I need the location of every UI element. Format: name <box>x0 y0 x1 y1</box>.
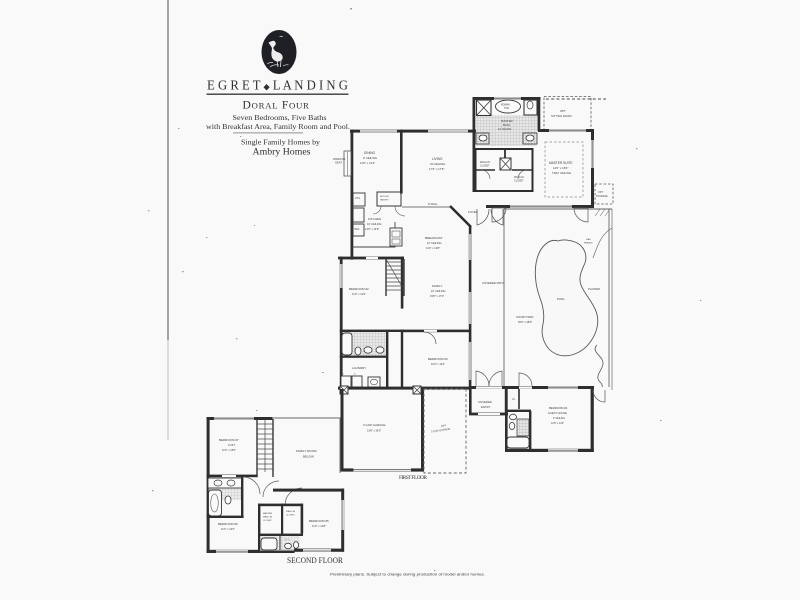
svg-text:12'8" x 14'0": 12'8" x 14'0" <box>551 422 564 425</box>
svg-text:17'6" x 17'8": 17'6" x 17'8" <box>429 167 444 171</box>
svg-text:OPT: OPT <box>441 423 447 428</box>
svg-text:Single Family Homes by: Single Family Homes by <box>241 139 321 147</box>
svg-text:KITCHEN: KITCHEN <box>368 217 381 221</box>
svg-text:SEAT: SEAT <box>335 161 342 165</box>
svg-text:DINING: DINING <box>364 151 376 155</box>
svg-text:LOFT: LOFT <box>228 443 235 447</box>
svg-text:BREAKFAST: BREAKFAST <box>425 236 443 240</box>
svg-text:Preliminary plans. Subject to: Preliminary plans. Subject to change dur… <box>330 573 485 577</box>
svg-text:TUB: TUB <box>504 107 509 110</box>
svg-text:GUEST HOUSE: GUEST HOUSE <box>548 411 567 415</box>
svg-text:BEDROOM #5: BEDROOM #5 <box>309 519 329 523</box>
svg-text:HEATED: HEATED <box>584 242 593 245</box>
svg-text:WALK-IN: WALK-IN <box>286 510 295 513</box>
svg-text:ENTRY: ENTRY <box>481 405 491 409</box>
svg-text:12' CEILING: 12' CEILING <box>498 128 511 131</box>
svg-text:FAMILY ROOM: FAMILY ROOM <box>296 449 317 453</box>
svg-text:11'0" x 12'0": 11'0" x 12'0" <box>352 292 366 296</box>
svg-text:BEDROOM #3: BEDROOM #3 <box>428 357 448 361</box>
svg-text:Seven Bedrooms, Five Baths: Seven Bedrooms, Five Baths <box>233 113 327 122</box>
svg-text:PANTRY: PANTRY <box>380 199 389 202</box>
svg-text:SECOND FLOOR: SECOND FLOOR <box>287 556 343 565</box>
svg-text:COVERED: COVERED <box>478 400 492 404</box>
svg-text:GAS: GAS <box>586 238 591 241</box>
svg-text:MASTER SUITE: MASTER SUITE <box>549 161 573 165</box>
svg-text:FAMILY: FAMILY <box>432 284 442 288</box>
svg-text:50'0" x 48'0": 50'0" x 48'0" <box>518 320 532 324</box>
svg-text:8' WALL: 8' WALL <box>428 202 438 206</box>
svg-text:COVERED PATIO: COVERED PATIO <box>482 281 505 285</box>
svg-text:11'0" x 13'8": 11'0" x 13'8" <box>426 246 440 250</box>
svg-text:OPT: OPT <box>598 191 603 194</box>
svg-text:MASTER: MASTER <box>263 512 273 515</box>
svg-text:SITTING ROOM: SITTING ROOM <box>551 114 572 118</box>
svg-text:CLOSET: CLOSET <box>480 165 490 168</box>
svg-text:REF: REF <box>355 228 360 231</box>
svg-text:PLANTER: PLANTER <box>588 287 600 291</box>
svg-text:BATH: BATH <box>503 123 510 127</box>
svg-text:FOYER: FOYER <box>468 210 478 214</box>
svg-text:11'0" x 15'0": 11'0" x 15'0" <box>222 448 236 452</box>
svg-text:BEDROOM #7: BEDROOM #7 <box>219 438 239 442</box>
svg-text:BEDROOM #6: BEDROOM #6 <box>218 522 238 526</box>
svg-text:LAUNDRY: LAUNDRY <box>352 366 366 370</box>
svg-text:13'6" x 14'8": 13'6" x 14'8" <box>365 227 379 231</box>
svg-text:BEDROOM #2: BEDROOM #2 <box>349 287 369 291</box>
svg-text:CLOSET: CLOSET <box>514 180 524 183</box>
svg-text:BELOW: BELOW <box>303 455 314 459</box>
svg-text:Ambry Homes: Ambry Homes <box>253 148 311 158</box>
svg-text:10'4" x 11'4": 10'4" x 11'4" <box>431 362 445 366</box>
svg-text:OPT: OPT <box>560 109 566 113</box>
svg-text:CLOSET: CLOSET <box>263 520 272 522</box>
svg-text:VA CEILING: VA CEILING <box>430 162 445 166</box>
svg-text:STORAGE: STORAGE <box>596 195 608 198</box>
svg-text:WALK-IN: WALK-IN <box>263 516 272 519</box>
svg-text:10' CEILING: 10' CEILING <box>427 241 441 245</box>
svg-text:BEDROOM #4: BEDROOM #4 <box>549 406 568 410</box>
svg-text:TRAY CEILING: TRAY CEILING <box>552 171 571 175</box>
svg-text:11'6" x 13'4": 11'6" x 13'4" <box>360 161 375 165</box>
svg-text:19'8" x 36'0": 19'8" x 36'0" <box>367 429 381 433</box>
svg-text:E G R E T ◆ L A N D I N G: E G R E T ◆ L A N D I N G <box>207 78 348 93</box>
svg-text:3 CAR GARAGE: 3 CAR GARAGE <box>363 423 386 427</box>
svg-text:LIVING: LIVING <box>432 157 443 161</box>
svg-text:FIRST FLOOR: FIRST FLOOR <box>399 475 427 481</box>
svg-text:CLOSET: CLOSET <box>286 515 295 517</box>
svg-text:10' CEILING: 10' CEILING <box>431 289 445 293</box>
svg-text:14'0" x 18'4": 14'0" x 18'4" <box>553 166 568 170</box>
svg-text:UTIL: UTIL <box>355 197 361 200</box>
svg-text:9' CEILING: 9' CEILING <box>363 156 377 160</box>
svg-text:COURTYARD: COURTYARD <box>516 315 533 319</box>
svg-text:11'0" x 12'8": 11'0" x 12'8" <box>312 524 326 528</box>
svg-text:POOL: POOL <box>557 297 565 301</box>
svg-text:with Breakfast Area, Family Ro: with Breakfast Area, Family Room and Poo… <box>206 122 350 131</box>
svg-text:BUTLER: BUTLER <box>380 196 389 198</box>
svg-text:11'0" x 13'0": 11'0" x 13'0" <box>221 527 235 531</box>
svg-text:10' CEILING: 10' CEILING <box>367 222 381 226</box>
svg-text:9' CEILING: 9' CEILING <box>553 417 565 420</box>
svg-text:15'8" x 17'0": 15'8" x 17'0" <box>430 294 444 298</box>
svg-text:DORAL FOUR: DORAL FOUR <box>243 100 310 112</box>
